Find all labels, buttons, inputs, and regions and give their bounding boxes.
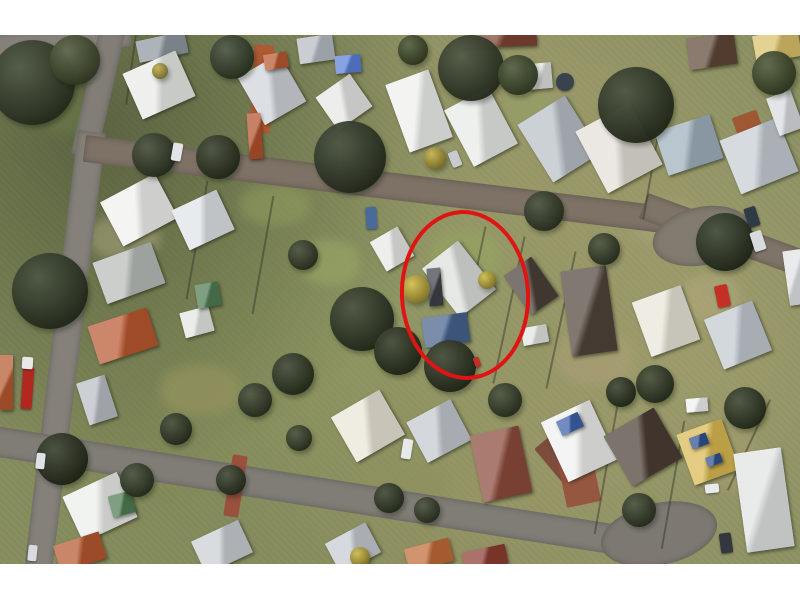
vehicle [400, 438, 413, 459]
house-roof [334, 54, 361, 74]
house-roof [733, 447, 794, 553]
tree [350, 547, 370, 564]
house-roof [331, 389, 405, 462]
tree [50, 35, 100, 85]
vehicle [447, 150, 462, 169]
house-roof [296, 35, 335, 64]
vehicle [719, 532, 734, 553]
tree [598, 67, 674, 143]
vehicle [22, 357, 34, 370]
house-roof [53, 531, 107, 564]
tree [160, 413, 192, 445]
tree [196, 135, 240, 179]
tree [210, 35, 254, 79]
tree [286, 425, 312, 451]
tree [636, 365, 674, 403]
tree [12, 253, 88, 329]
tree [606, 377, 636, 407]
house-roof [122, 50, 195, 119]
tree [314, 121, 386, 193]
tree [524, 191, 564, 231]
tree [696, 213, 754, 271]
aerial-photo [0, 35, 800, 564]
vehicle [35, 453, 46, 470]
ground-patch [160, 365, 240, 415]
house-roof [461, 544, 508, 564]
house-roof [782, 249, 800, 306]
tree [132, 133, 176, 177]
house-roof [171, 189, 235, 250]
house-roof [179, 306, 215, 339]
house-roof [404, 537, 455, 564]
vehicle [556, 73, 574, 91]
vehicle [705, 483, 720, 493]
tree [622, 493, 656, 527]
tree [272, 353, 314, 395]
house-roof [87, 307, 158, 364]
vehicle [21, 367, 35, 410]
tree [588, 233, 620, 265]
tree [498, 55, 538, 95]
house-roof [406, 399, 472, 463]
house-roof [191, 520, 253, 564]
tree [216, 465, 246, 495]
tree [120, 463, 154, 497]
house-roof [0, 355, 13, 410]
tree [374, 483, 404, 513]
house-roof [686, 35, 738, 70]
house-roof [76, 374, 118, 425]
tree [438, 35, 504, 101]
tree [152, 63, 168, 79]
vehicle [365, 207, 378, 230]
tree [752, 51, 796, 95]
tree [724, 387, 766, 429]
tree [424, 147, 446, 169]
tree [488, 383, 522, 417]
page: { "annotation": { "shape": "ellipse", "c… [0, 0, 800, 600]
ground-patch [240, 185, 310, 225]
house-roof [469, 426, 532, 503]
road [595, 491, 723, 564]
tree [414, 497, 440, 523]
tree [288, 240, 318, 270]
vehicle [27, 545, 38, 562]
house-roof [194, 281, 222, 309]
tree [398, 35, 428, 65]
tree [238, 383, 272, 417]
house-roof [685, 397, 708, 413]
